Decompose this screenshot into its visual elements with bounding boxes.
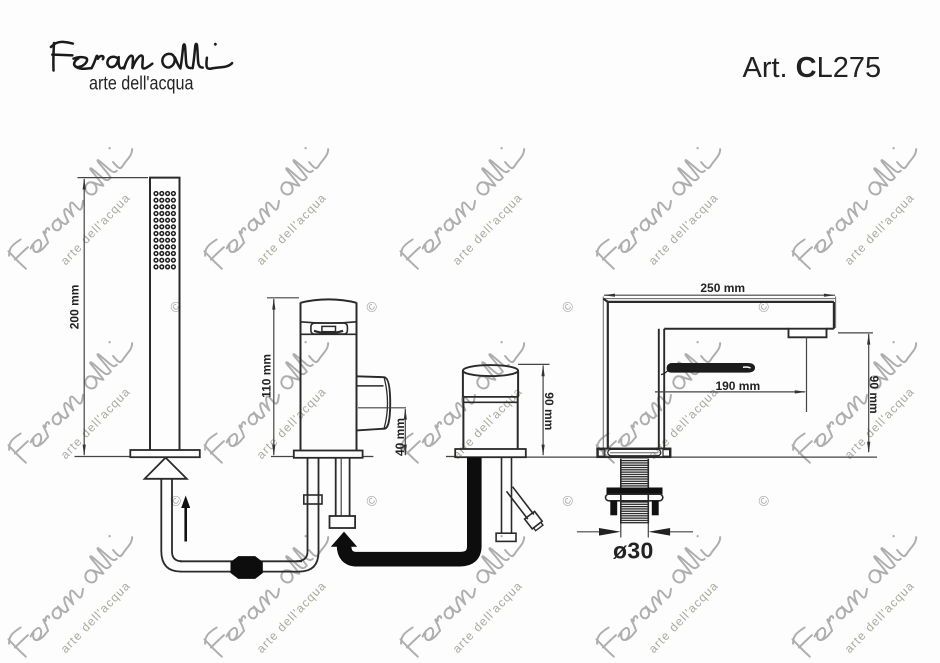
svg-text:90 mm: 90 mm [867, 376, 881, 414]
svg-text:110 mm: 110 mm [259, 354, 273, 398]
svg-text:arte dell'acqua: arte dell'acqua [89, 73, 194, 95]
svg-text:250 mm: 250 mm [700, 281, 745, 295]
svg-text:ø30: ø30 [613, 538, 654, 564]
svg-text:40 mm: 40 mm [393, 418, 407, 456]
svg-text:200 mm: 200 mm [67, 285, 81, 330]
svg-text:190 mm: 190 mm [715, 379, 760, 393]
svg-text:Art. CL275: Art. CL275 [743, 52, 882, 84]
svg-text:90 mm: 90 mm [542, 392, 556, 430]
